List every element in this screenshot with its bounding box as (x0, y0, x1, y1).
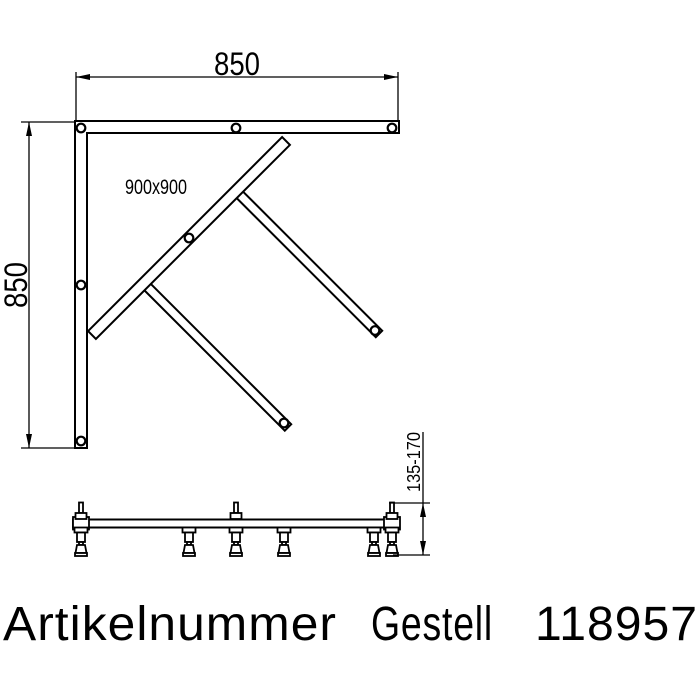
adjustable-foot-3 (230, 528, 243, 557)
size-label: 900x900 (125, 176, 187, 199)
leveling-bolt-middle (231, 503, 242, 520)
height-dimension: 850 (0, 122, 75, 448)
caption: Artikelnummer Gestell 118957 (3, 598, 698, 651)
adjustable-foot-2 (183, 528, 196, 557)
caption-product-name: Gestell (371, 598, 493, 651)
base-rail (73, 520, 399, 528)
arrowhead-up-icon (26, 122, 32, 136)
arrowhead-left-icon (76, 74, 90, 80)
mounting-hole-corner (77, 124, 86, 133)
height-dimension-label: 850 (0, 262, 34, 308)
width-dimension-label: 850 (214, 46, 260, 82)
mounting-hole-brace (185, 234, 194, 243)
leveling-bolt-left (76, 503, 87, 520)
foot-height-label: 135-170 (404, 432, 424, 492)
technical-drawing-page: 850 850 900x900 (0, 0, 700, 700)
arrowhead-right-icon (384, 74, 398, 80)
arrowhead-down-icon (26, 434, 32, 448)
plan-view: 850 850 900x900 (0, 46, 399, 448)
adjustable-foot-1 (75, 528, 88, 557)
support-arm-lower (139, 278, 291, 430)
width-dimension: 850 (76, 46, 398, 120)
side-view: 135-170 (73, 432, 430, 556)
adjustable-foot-4 (278, 528, 291, 557)
mounting-hole-arm-upper (371, 326, 380, 335)
support-arm-upper (232, 187, 382, 337)
leveling-bolt-right (387, 503, 398, 520)
arrowhead-down-icon (420, 541, 426, 555)
mounting-hole-top-middle (232, 124, 241, 133)
frame-drawing: 850 850 900x900 (0, 0, 700, 700)
mounting-hole-arm-lower (280, 419, 289, 428)
mounting-hole-top-right (388, 124, 397, 133)
corner-frame (75, 121, 399, 448)
arrowhead-up-icon (420, 503, 426, 517)
caption-article-label: Artikelnummer (3, 598, 337, 651)
mounting-hole-left-middle (77, 281, 86, 290)
adjustable-foot-6 (386, 528, 399, 557)
adjustable-foot-5 (368, 528, 381, 557)
mounting-hole-left-bottom (77, 437, 86, 446)
caption-article-number: 118957 (535, 598, 698, 651)
